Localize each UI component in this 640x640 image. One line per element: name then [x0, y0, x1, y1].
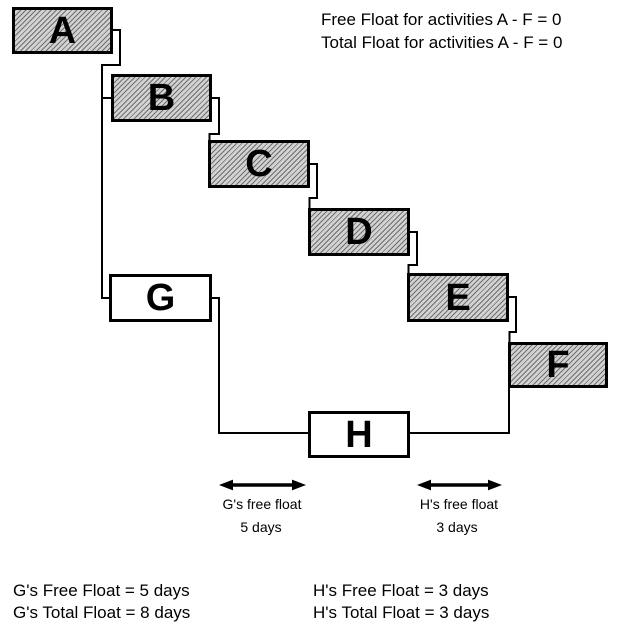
activity-label-d: D: [345, 213, 372, 251]
connector-h-f: [410, 388, 509, 433]
activity-box-a: A: [12, 7, 113, 54]
connector-g-h: [212, 298, 308, 433]
float-diagram: A B C D E F G H Free Float for activitie…: [0, 0, 640, 640]
activity-box-e: E: [407, 273, 509, 322]
activity-label-e: E: [445, 279, 470, 317]
activity-box-g: G: [109, 274, 212, 322]
h-free-float-caption: H's free float: [420, 496, 498, 512]
float-note-line1: Free Float for activities A - F = 0: [321, 8, 562, 31]
connector-e-f: [509, 297, 516, 342]
h-free-float-value: 3 days: [436, 519, 477, 535]
activity-box-f: F: [508, 342, 608, 388]
summary-g-free-float: G's Free Float = 5 days: [13, 581, 190, 601]
connector-layer: [0, 0, 640, 640]
summary-h-total-float: H's Total Float = 3 days: [313, 603, 489, 623]
summary-g-total-float: G's Total Float = 8 days: [13, 603, 190, 623]
activity-label-h: H: [345, 416, 372, 454]
activity-box-b: B: [111, 74, 212, 122]
activity-box-h: H: [308, 411, 410, 458]
g-free-float-value: 5 days: [240, 519, 281, 535]
activity-label-g: G: [146, 279, 176, 317]
activity-label-b: B: [148, 79, 175, 117]
activity-label-a: A: [49, 12, 76, 50]
g-free-float-caption: G's free float: [223, 496, 302, 512]
g-free-float-double-arrow-icon: [219, 480, 306, 491]
connector-a-trunk: [102, 30, 120, 298]
activity-label-f: F: [546, 346, 569, 384]
float-note: Free Float for activities A - F = 0 Tota…: [321, 8, 562, 54]
float-note-line2: Total Float for activities A - F = 0: [321, 31, 562, 54]
activity-box-d: D: [308, 208, 410, 256]
activity-box-c: C: [208, 140, 310, 188]
h-free-float-double-arrow-icon: [417, 480, 502, 491]
summary-h-free-float: H's Free Float = 3 days: [313, 581, 489, 601]
activity-label-c: C: [245, 145, 272, 183]
connector-c-d: [310, 164, 318, 208]
